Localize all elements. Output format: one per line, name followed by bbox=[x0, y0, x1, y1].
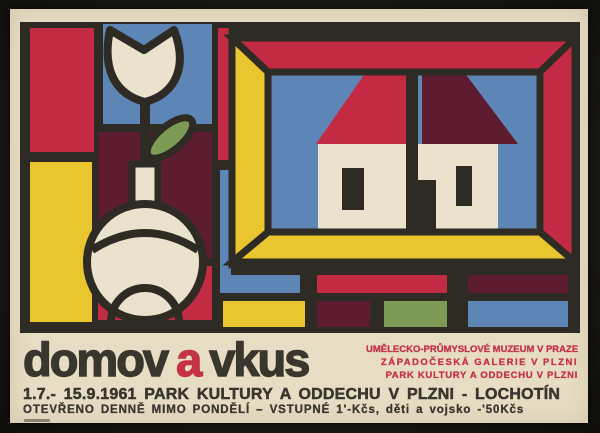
red-strip bbox=[218, 28, 229, 160]
tile-blue-bottom bbox=[468, 301, 568, 327]
date-venue-line: 1.7.- 15.9.1961 PARK KULTURY A ODDECHU V… bbox=[23, 386, 580, 404]
poster-artwork bbox=[20, 22, 580, 333]
institution-line-3: PARK KULTURY A ODDECHU V PLZNI bbox=[366, 369, 578, 382]
tile-green-bottom bbox=[384, 301, 447, 327]
title-word-domov: domov bbox=[23, 333, 167, 386]
tile-red-bottom bbox=[317, 275, 447, 293]
house-window-left bbox=[342, 168, 364, 210]
poster: domovavkus UMĚLECKO-PRŮMYSLOVÉ MUZEUM V … bbox=[10, 9, 588, 423]
title-word-a: a bbox=[176, 333, 200, 386]
tile-maroon-bottom-2 bbox=[317, 301, 370, 327]
caption-top-row: domovavkus UMĚLECKO-PRŮMYSLOVÉ MUZEUM V … bbox=[23, 340, 578, 384]
tile-maroon-bottom-1 bbox=[468, 275, 568, 293]
tile-yellow-left bbox=[30, 162, 92, 322]
poster-title: domovavkus bbox=[23, 340, 308, 380]
photo-backdrop: domovavkus UMĚLECKO-PRŮMYSLOVÉ MUZEUM V … bbox=[0, 0, 600, 433]
frame-bottom-bar bbox=[232, 232, 575, 262]
frame-right-bar bbox=[540, 38, 575, 262]
tile-yellow-bottom bbox=[223, 301, 305, 327]
house-door bbox=[406, 180, 436, 236]
title-word-vkus: vkus bbox=[209, 333, 308, 386]
frame-left-bar bbox=[232, 38, 268, 262]
framed-house-panel bbox=[232, 38, 575, 262]
hours-admission-line: OTEVŘENO DENNĚ MIMO PONDĚLÍ – VSTUPNÉ 1'… bbox=[23, 404, 524, 416]
frame-top-bar bbox=[232, 38, 575, 72]
institutions-block: UMĚLECKO-PRŮMYSLOVÉ MUZEUM V PRAZE ZÁPAD… bbox=[366, 343, 578, 382]
print-credit-mark bbox=[24, 419, 50, 422]
vase-body bbox=[87, 204, 203, 320]
institution-line-1: UMĚLECKO-PRŮMYSLOVÉ MUZEUM V PRAZE bbox=[366, 343, 578, 356]
institution-line-2: ZÁPADOČESKÁ GALERIE V PLZNI bbox=[366, 356, 578, 369]
house-window-right bbox=[456, 166, 472, 206]
tile-red-left bbox=[30, 28, 94, 152]
